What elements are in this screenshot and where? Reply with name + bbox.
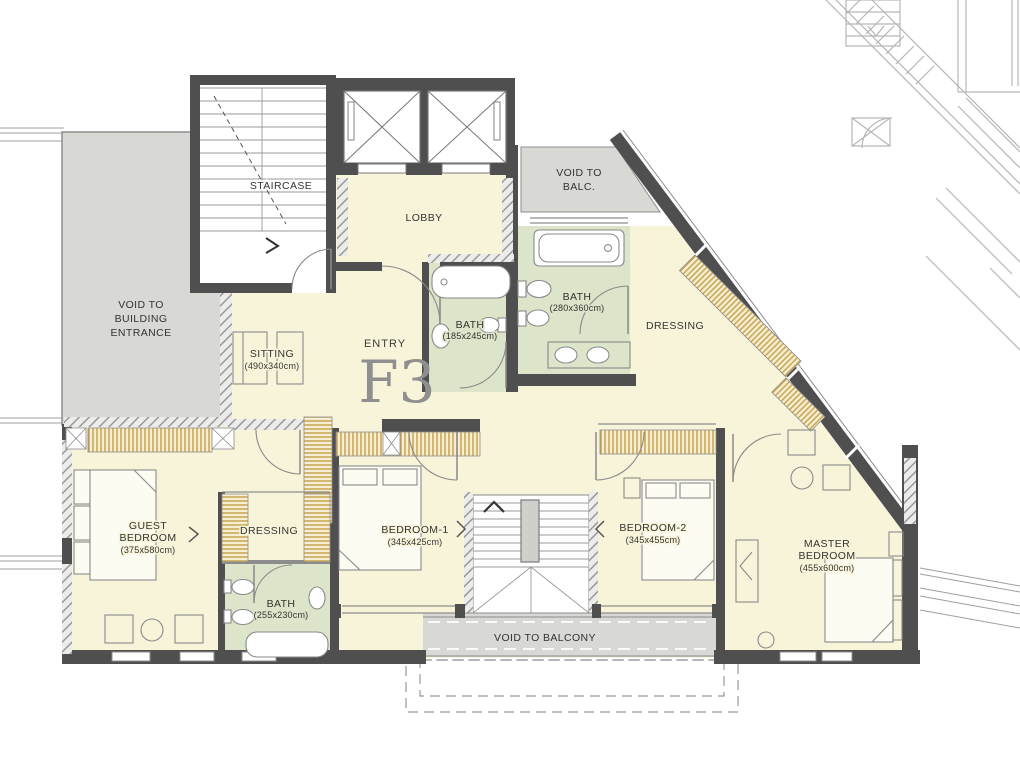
guest-bed-cabinet (74, 542, 90, 574)
sitting-label: SITTING (250, 348, 294, 360)
void-balc-label-2: BALC. (563, 181, 595, 193)
window (780, 652, 816, 661)
sink (555, 347, 577, 363)
internal-staircase (464, 492, 598, 613)
bath-entry-dims: (185x245cm) (443, 331, 498, 341)
master-bedroom-label-2: BEDROOM (798, 550, 855, 562)
toilet (527, 281, 551, 298)
bedroom2-label: BEDROOM-2 (619, 522, 686, 534)
floor-plan-svg: STAIRCASE LOBBY VOID TO BALC. VOID TO BU… (0, 0, 1020, 780)
lobby-label: LOBBY (405, 212, 442, 224)
bedroom1-dims: (345x425cm) (388, 537, 443, 547)
bathtub (432, 266, 510, 298)
master-bedroom-label-1: MASTER (804, 538, 850, 550)
elevator-door (358, 164, 406, 173)
guest-bed-cabinet (74, 470, 90, 504)
bath-entry-label: BATH (456, 319, 485, 331)
bedroom1-label: BEDROOM-1 (381, 524, 448, 536)
window (112, 652, 150, 661)
void-balcony-label: VOID TO BALCONY (494, 632, 596, 644)
bathtub (534, 230, 624, 266)
bedroom1-bed (339, 466, 421, 570)
void-building-label-2: BUILDING (115, 313, 168, 325)
bath-master-label: BATH (563, 291, 592, 303)
master-bedroom-dims: (455x600cm) (800, 563, 855, 573)
bath-guest-label: BATH (267, 598, 296, 610)
elevators (335, 78, 515, 175)
sink (309, 587, 325, 609)
floor-plan-page: STAIRCASE LOBBY VOID TO BALC. VOID TO BU… (0, 0, 1020, 780)
sitting-dims: (490x340cm) (245, 361, 300, 371)
bath-guest-dims: (255x230cm) (254, 610, 309, 620)
window (822, 652, 852, 661)
dressing-guest-label: DRESSING (240, 525, 298, 537)
void-building-label-3: ENTRANCE (111, 327, 172, 339)
window (180, 652, 214, 661)
void-balc-label-1: VOID TO (556, 167, 602, 179)
dressing-master-label: DRESSING (646, 320, 704, 332)
bedroom2-dims: (345x455cm) (626, 535, 681, 545)
void-building-label-1: VOID TO (118, 299, 164, 311)
bathtub (246, 632, 328, 657)
sink (587, 347, 609, 363)
master-side-window (904, 458, 916, 524)
bidet (527, 310, 549, 326)
toilet (232, 580, 254, 595)
guest-bedroom-label-1: GUEST (129, 520, 167, 532)
guest-bed-cabinet (74, 506, 90, 540)
guest-bedroom-dims: (375x580cm) (121, 545, 176, 555)
staircase-label: STAIRCASE (250, 180, 312, 192)
guest-bedroom-label-2: BEDROOM (119, 532, 176, 544)
unit-number: F3 (358, 348, 435, 416)
elevator-door (442, 164, 490, 173)
bidet (232, 610, 254, 625)
bath-master-dims: (280x360cm) (550, 303, 605, 313)
